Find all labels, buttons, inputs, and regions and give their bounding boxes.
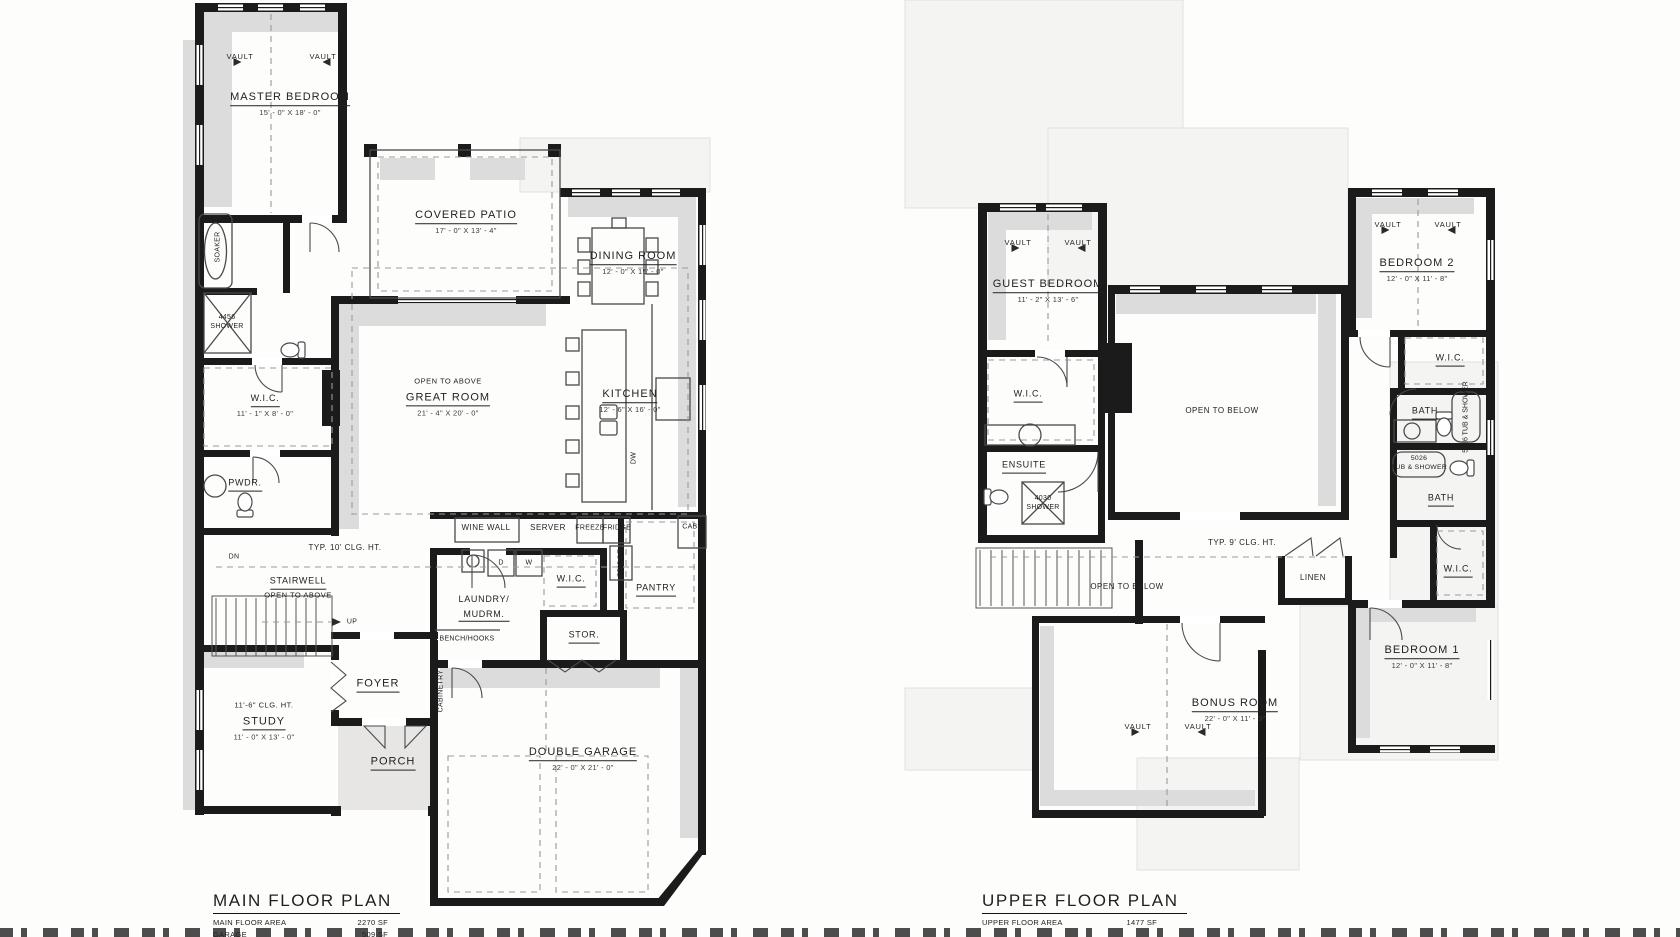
room-label-guest-bedroom: GUEST BEDROOM 11' - 2" X 13' - 6" xyxy=(993,273,1104,305)
note-ceiling-height-main: TYP. 10' CLG. HT. xyxy=(308,543,381,553)
note-ceiling-height-upper: TYP. 9' CLG. HT. xyxy=(1208,538,1276,548)
room-label-dining-room: DINING ROOM 12' - 0" X 15' - 0" xyxy=(590,245,677,277)
fixture-label-shower: 4456 SHOWER xyxy=(210,313,243,331)
upper-plan-title: UPPER FLOOR PLAN xyxy=(982,891,1187,914)
room-label-wic-bed1: W.I.C. xyxy=(1444,558,1473,579)
vault-label: VAULT xyxy=(1064,238,1091,247)
room-label-powder: PWDR. xyxy=(228,472,262,493)
note-open-to-below-stair: OPEN TO BELOW xyxy=(1090,582,1163,592)
room-label-bedroom-2: BEDROOM 2 12' - 0" X 11' - 8" xyxy=(1379,252,1454,284)
vault-label: VAULT xyxy=(1434,220,1461,229)
vault-label: VAULT xyxy=(1374,220,1401,229)
fixture-label-cabinetry: CABINETRY xyxy=(436,670,445,713)
room-label-covered-patio: COVERED PATIO 17' - 0" X 13' - 4" xyxy=(415,204,517,236)
room-label-double-garage: DOUBLE GARAGE 22' - 0" X 21' - 0" xyxy=(529,741,637,773)
stat-row: GARAGE509 SF xyxy=(213,930,388,937)
vault-label: VAULT xyxy=(309,52,336,61)
fixture-label-cabinet: CAB. xyxy=(682,522,700,531)
note-stairs-up: UP xyxy=(347,617,357,626)
main-plan-title: MAIN FLOOR PLAN xyxy=(213,891,400,914)
fixture-label-fridge: FRIDGE xyxy=(603,523,631,532)
room-label-bath-1: BATH xyxy=(1412,400,1438,421)
vault-label: VAULT xyxy=(226,52,253,61)
fixture-label-shower-4030: 4030 SHOWER xyxy=(1026,494,1059,512)
room-label-porch: PORCH xyxy=(371,751,416,772)
room-label-bath-2: BATH xyxy=(1428,487,1454,508)
room-label-foyer: FOYER xyxy=(357,673,400,694)
fixture-label-washer: W xyxy=(526,558,533,567)
fixture-label-dishwasher: DW xyxy=(629,452,638,464)
stat-row: MAIN FLOOR AREA2270 SF xyxy=(213,918,388,927)
fixture-label-fridge-vertical: FRIDGE xyxy=(616,549,625,577)
room-label-pantry: PANTRY xyxy=(636,577,676,598)
main-plan-title-block: MAIN FLOOR PLAN MAIN FLOOR AREA2270 SF G… xyxy=(213,891,400,937)
room-label-kitchen: KITCHEN 12' - 6" X 16' - 0" xyxy=(599,383,660,415)
room-label-study: 11'-6" CLG. HT. STUDY 11' - 0" X 13' - 0… xyxy=(234,700,295,741)
fixture-label-tub-shower: 5026 TUB & SHOWER xyxy=(1391,455,1447,473)
room-label-great-room: OPEN TO ABOVE GREAT ROOM 21' - 4" X 20' … xyxy=(406,376,490,417)
vault-label: VAULT xyxy=(1184,722,1211,731)
room-label-wic-master: W.I.C. 11' - 1" X 8' - 0" xyxy=(237,387,293,419)
fixture-label-dryer: D xyxy=(498,558,503,567)
room-label-master-bedroom: MASTER BEDROOM 15' - 0" X 18' - 0" xyxy=(230,86,350,118)
room-label-stairwell: STAIRWELL OPEN TO ABOVE xyxy=(264,570,332,601)
vault-label: VAULT xyxy=(1124,722,1151,731)
fixture-label-server: SERVER xyxy=(530,523,566,533)
room-label-linen: LINEN xyxy=(1300,573,1326,583)
note-open-to-below-great: OPEN TO BELOW xyxy=(1185,406,1258,416)
room-label-wic-guest: W.I.C. xyxy=(1014,383,1043,404)
fixture-label-bench-hooks: BENCH/HOOKS xyxy=(439,634,494,643)
room-label-bonus-room: BONUS ROOM 22' - 0" X 11' - 3" xyxy=(1192,692,1278,724)
room-label-wic-bed2: W.I.C. xyxy=(1436,347,1465,368)
note-stairs-down: DN xyxy=(229,552,240,561)
fixture-label-tub-shower-vertical: 5026 TUB & SHOWER xyxy=(1461,381,1470,452)
room-label-storage: STOR. xyxy=(569,624,600,645)
fixture-label-freezer: FREEZE xyxy=(575,523,604,532)
vault-label: VAULT xyxy=(1004,238,1031,247)
room-label-wic-mudroom: W.I.C. xyxy=(557,568,586,589)
fixture-label-soaker-tub: SOAKER xyxy=(213,232,222,263)
room-label-ensuite: ENSUITE xyxy=(1002,454,1046,475)
fixture-label-wine-wall: WINE WALL xyxy=(461,523,510,533)
room-label-laundry-mudroom: LAUNDRY/ MUDRM. xyxy=(459,588,510,622)
stat-row: UPPER FLOOR AREA1477 SF xyxy=(982,918,1157,927)
room-label-bedroom-1: BEDROOM 1 12' - 0" X 11' - 8" xyxy=(1384,639,1459,671)
floor-plan-sheet: VAULT VAULT MASTER BEDROOM 15' - 0" X 18… xyxy=(0,0,1680,937)
upper-plan-title-block: UPPER FLOOR PLAN UPPER FLOOR AREA1477 SF xyxy=(982,891,1187,927)
